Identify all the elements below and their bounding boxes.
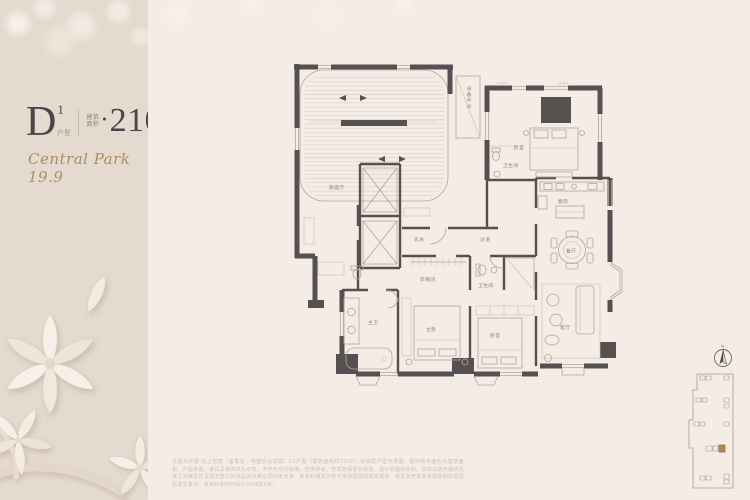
flower-relief-small-icon [100, 428, 148, 500]
bullet-dot: ● [102, 116, 106, 123]
room-label-family-room: 家庭厅 [329, 184, 345, 191]
floorplan-drawing: 家庭厅 玄关 过道 设备平台 卧室 卫生间 厨房 餐厅 客厅 主卫 主卧 卧室 … [280, 50, 670, 400]
area-value: 210 [110, 102, 148, 140]
keyplan-highlighted-unit [719, 445, 726, 453]
room-label-foyer: 玄关 [414, 236, 424, 243]
area-caption: 建筑 面积 [86, 115, 99, 129]
room-label-master-bath: 主卫 [368, 319, 378, 326]
room-label-hallway: 过道 [480, 236, 490, 243]
area-caption-bottom: 面积 [86, 122, 99, 129]
divider [78, 110, 79, 136]
unit-code-side: 1 户型 [57, 104, 71, 137]
room-label-kitchen: 厨房 [558, 198, 568, 205]
room-label-bedroom-2: 卧室 [490, 332, 500, 339]
room-label-master-bed: 主卧 [426, 326, 436, 333]
lace-texture [148, 0, 438, 48]
keyplan-outline [689, 374, 733, 488]
disclaimer-text: 本图为中建·玖上璟宸（备案名：中建玖合璟宸）D1户型（建筑面积约210㎡）标准层… [172, 459, 464, 489]
brand-script: Central Park 19.9 [28, 150, 148, 186]
room-label-equipment: 设备平台 [466, 85, 471, 109]
room-label-bath-2: 卫生间 [478, 282, 494, 289]
room-label-dining: 餐厅 [566, 248, 576, 255]
room-label-bedroom-top: 卧室 [514, 144, 524, 151]
room-label-bath-top: 卫生间 [503, 162, 519, 169]
keyplan-units [694, 376, 729, 484]
unit-superscript: 1 [57, 104, 71, 116]
room-label-cloakroom: 衣帽间 [420, 276, 436, 283]
terrace-area [300, 70, 448, 201]
room-label-living: 客厅 [560, 324, 570, 331]
brand-panel: D 1 户型 建筑 面积 ● 210 ㎡ Central Park 19.9 [0, 0, 148, 500]
unit-caption: 户型 [57, 128, 71, 137]
unit-title: D 1 户型 建筑 面积 ● 210 ㎡ [26, 102, 148, 142]
unit-code: D [26, 102, 56, 142]
area-caption-top: 建筑 [86, 115, 99, 122]
brochure-page: D 1 户型 建筑 面积 ● 210 ㎡ Central Park 19.9 [0, 0, 750, 500]
compass-icon: N [715, 344, 732, 367]
north-label: N [721, 344, 724, 349]
keyplan: N [680, 338, 750, 498]
